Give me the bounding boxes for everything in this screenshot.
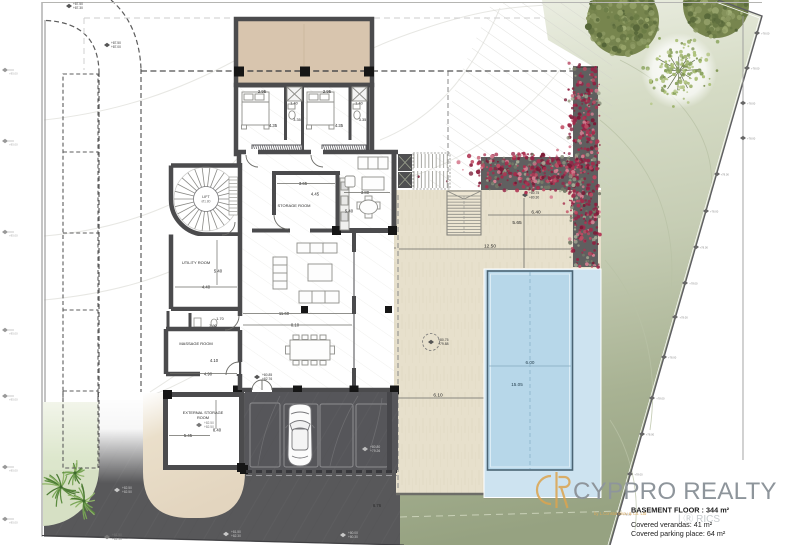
svg-text:4.35: 4.35	[335, 123, 344, 128]
svg-text:+78.00: +78.00	[700, 246, 709, 250]
svg-text:+78.00: +78.00	[761, 32, 770, 36]
svg-text:+85.00: +85.00	[9, 398, 18, 402]
svg-text:ROOM: ROOM	[197, 415, 209, 420]
svg-text:1.40: 1.40	[355, 102, 362, 106]
svg-text:1.70: 1.70	[216, 317, 223, 321]
svg-text:+82.76: +82.76	[262, 377, 272, 381]
svg-text:4.35: 4.35	[269, 123, 278, 128]
svg-text:+87.30: +87.30	[73, 6, 83, 10]
svg-text:5.65: 5.65	[512, 220, 522, 226]
svg-text:LIFT: LIFT	[202, 195, 210, 199]
svg-text:+78.00: +78.00	[751, 67, 760, 71]
svg-text:+78.00: +78.00	[634, 473, 643, 477]
svg-text:3.35: 3.35	[293, 118, 300, 122]
svg-text:+78.00: +78.00	[721, 173, 730, 177]
svg-text:+82.50: +82.50	[204, 425, 214, 429]
svg-text:+85.00: +85.00	[9, 469, 18, 473]
svg-text:Covered parking place: 64 m²: Covered parking place: 64 m²	[631, 529, 726, 538]
svg-text:Ø1.80: Ø1.80	[202, 200, 211, 204]
svg-text:3.35: 3.35	[359, 118, 366, 122]
svg-text:+85.00: +85.00	[9, 72, 18, 76]
svg-text:5.40: 5.40	[345, 209, 354, 214]
svg-text:+78.00: +78.00	[668, 356, 677, 360]
svg-text:2.95: 2.95	[323, 89, 332, 94]
svg-text:+78.00: +78.00	[679, 316, 688, 320]
svg-text:6.76: 6.76	[373, 503, 382, 508]
svg-text:+80.30: +80.30	[529, 196, 539, 200]
svg-text:+79.88: +79.88	[438, 342, 449, 346]
svg-text:15.05: 15.05	[511, 382, 523, 387]
svg-text:+79.26: +79.26	[370, 449, 380, 453]
svg-text:4.45: 4.45	[311, 192, 320, 197]
svg-text:MASSAGE ROOM: MASSAGE ROOM	[179, 341, 212, 346]
svg-text:Covered verandas: 41 m²: Covered verandas: 41 m²	[631, 520, 713, 529]
svg-text:+85.00: +85.00	[9, 332, 18, 336]
svg-text:8.40: 8.40	[213, 428, 222, 433]
svg-text:STORAGE ROOM: STORAGE ROOM	[277, 203, 310, 208]
svg-text:+78.00: +78.00	[747, 102, 756, 106]
svg-text:2.95: 2.95	[258, 89, 267, 94]
svg-text:+87.00: +87.00	[111, 45, 121, 49]
svg-text:+78.00: +78.00	[656, 397, 665, 401]
svg-text:+78.00: +78.00	[710, 210, 719, 214]
svg-text:6.40: 6.40	[531, 210, 541, 216]
svg-text:+85.00: +85.00	[9, 234, 18, 238]
svg-text:12.50: 12.50	[484, 244, 496, 250]
svg-text:CYPPRO REALTY: CYPPRO REALTY	[573, 478, 777, 505]
svg-text:4.10: 4.10	[210, 358, 219, 363]
svg-text:BASEMENT FLOOR : 344 m²: BASEMENT FLOOR : 344 m²	[631, 506, 730, 515]
svg-text:+78.00: +78.00	[689, 282, 698, 286]
svg-text:UTILITY ROOM: UTILITY ROOM	[182, 260, 210, 265]
svg-text:4.90: 4.90	[204, 372, 213, 377]
svg-text:1.40: 1.40	[290, 102, 297, 106]
svg-text:5.40: 5.40	[214, 269, 223, 274]
svg-text:+82.50: +82.50	[122, 490, 132, 494]
svg-text:+78.00: +78.00	[747, 137, 756, 141]
svg-text:+85.00: +85.00	[9, 143, 18, 147]
svg-text:6.00: 6.00	[526, 360, 535, 365]
svg-text:+85.00: +85.00	[9, 521, 18, 525]
svg-text:6.10: 6.10	[433, 393, 443, 399]
svg-text:+78.00: +78.00	[646, 433, 655, 437]
svg-text:+80.75: +80.75	[529, 191, 539, 195]
svg-text:+80.30: +80.30	[348, 535, 358, 539]
svg-text:+82.30: +82.30	[231, 534, 241, 538]
svg-text:+81.50: +81.50	[112, 537, 122, 541]
